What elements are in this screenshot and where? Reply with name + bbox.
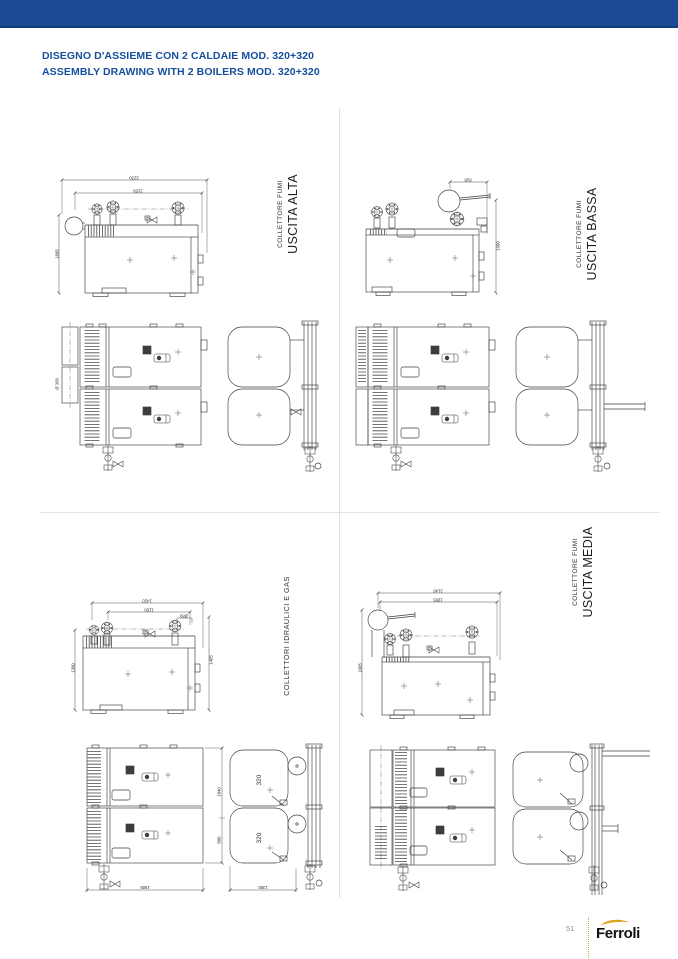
dimension-label: 800 [217,836,222,844]
label-uscita-media: COLLETTORE FUMI USCITA MEDIA [566,522,600,622]
catalog-page: DISEGNO D'ASSIEME CON 2 CALDAIE MOD. 320… [0,0,678,959]
dimension-label: 1150 [144,608,154,613]
drawing-uscita-media-plan [370,744,650,895]
technical-drawings: 2230 2159 1685 Ø 350 828 1900 1420 1150 … [0,0,678,959]
ferroli-logo: Ferroli [595,917,651,943]
ferroli-logo-graphic: Ferroli [595,917,651,943]
drawing-uscita-media-side [361,592,502,719]
drawing-uscita-bassa-side [366,181,498,296]
collector-label: COLLETTORE FUMI [576,200,583,268]
dimension-label: 1405 [209,655,214,665]
outlet-label: USCITA BASSA [585,188,599,281]
model-label: 320 [256,774,263,785]
page-number: 51 [566,924,574,933]
drawing-uscita-bassa-plan [356,321,645,472]
label-collettori-idraulici: COLLETTORI IDRAULICI E GAS [280,574,292,698]
footer-divider-dotted [588,917,589,958]
drawing-collettori-plan [86,744,323,892]
outlet-label: USCITA ALTA [286,174,300,254]
collector-label: COLLETTORE FUMI [277,180,284,248]
dimension-label: 2230 [129,176,139,181]
dimension-label: 1420 [142,599,152,604]
outlet-label: USCITA MEDIA [581,527,595,618]
collector-label: COLLETTORE FUMI [572,538,579,606]
dimension-label: 1380 [258,885,268,890]
dimension-label: 828 [464,178,472,183]
dimension-label: 1360 [71,663,76,673]
dimension-label: 1840 [217,787,222,797]
drawing-uscita-alta-side [58,179,209,297]
drawing-uscita-alta-plan [62,321,321,472]
dimension-label: Ø80 [179,614,188,619]
collector-label: COLLETTORI IDRAULICI E GAS [282,576,291,696]
dimension-label: 1985 [140,885,150,890]
dimension-label: 1955 [433,598,443,603]
model-label: 320 [256,832,263,843]
dimension-label: Ø 350 [55,378,60,390]
dimension-label: 1905 [358,663,363,673]
dimension-label: 1900 [496,241,501,251]
dimension-label: 1685 [55,249,60,259]
drawing-collettori-side [74,602,211,714]
logo-wordmark: Ferroli [596,925,640,942]
label-uscita-bassa: COLLETTORE FUMI USCITA BASSA [570,184,604,284]
label-uscita-alta: COLLETTORE FUMI USCITA ALTA [271,164,305,264]
dimension-label: 2159 [133,189,143,194]
dimension-label: 2146 [433,589,443,594]
